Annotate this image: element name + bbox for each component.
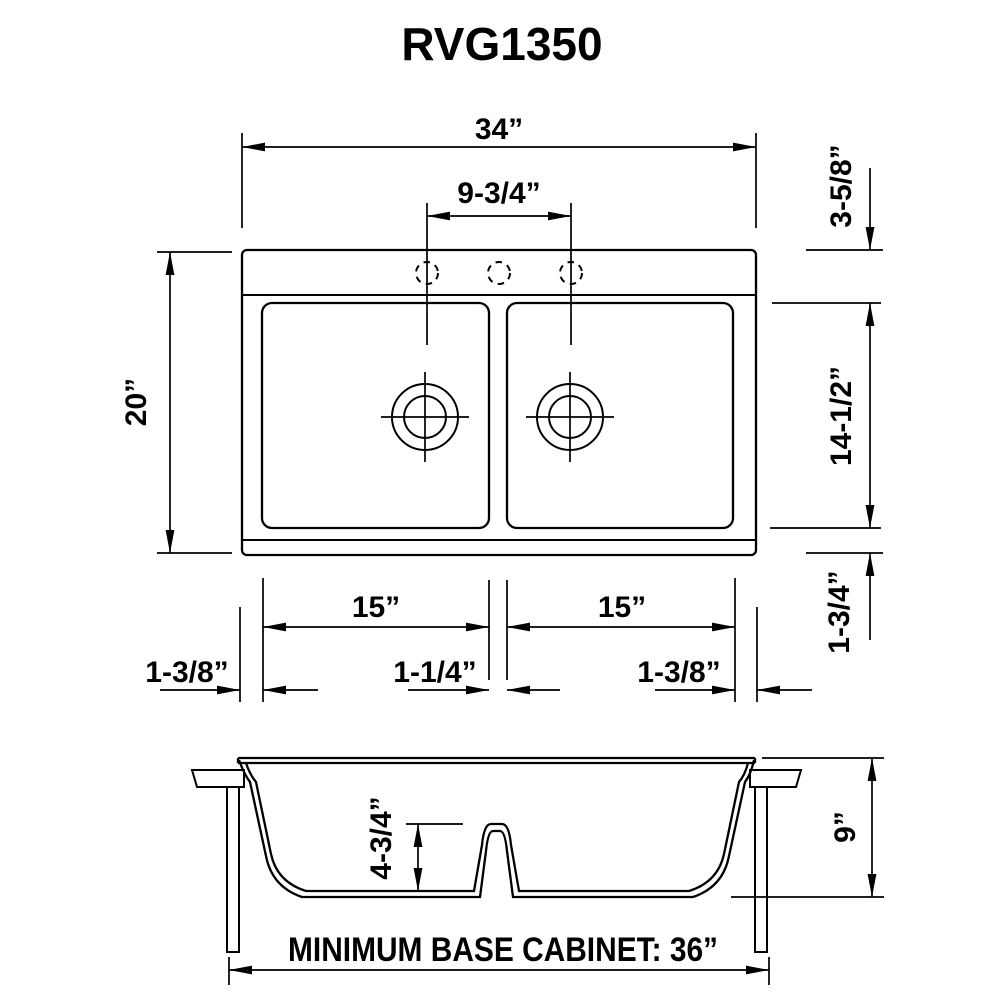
- dim-right-bowl-width: 15”: [598, 591, 646, 624]
- mounting-clip-left-leg: [227, 787, 239, 952]
- dim-overall-width: 34”: [475, 113, 523, 146]
- dim-overall-front-back: 20”: [120, 378, 153, 426]
- dim-bowl-to-bottom-edge: 1-3/4”: [823, 570, 856, 653]
- dim-bowl-front-back: 14-1/2”: [825, 366, 858, 466]
- model-number-title: RVG1350: [401, 18, 602, 70]
- sink-dimension-drawing: RVG1350 34”: [0, 0, 1000, 1000]
- dim-center-divider-width: 1-1/4”: [393, 656, 476, 689]
- dim-left-rim-width: 1-3/8”: [145, 656, 228, 689]
- dim-left-bowl-width: 15”: [352, 591, 400, 624]
- dim-sink-depth: 9”: [829, 811, 862, 843]
- dim-right-rim-width: 1-3/8”: [637, 656, 720, 689]
- mounting-clip-right-leg: [755, 787, 767, 952]
- mounting-clip-right-bar: [750, 770, 801, 787]
- min-base-cabinet-note: MINIMUM BASE CABINET: 36”: [288, 931, 718, 969]
- dim-faucet-hole-spacing: 9-3/4”: [457, 177, 540, 210]
- dim-divider-height: 4-3/4”: [365, 796, 398, 879]
- dim-rim-to-bowl: 3-5/8”: [825, 144, 858, 227]
- mounting-clip-left-bar: [192, 770, 244, 787]
